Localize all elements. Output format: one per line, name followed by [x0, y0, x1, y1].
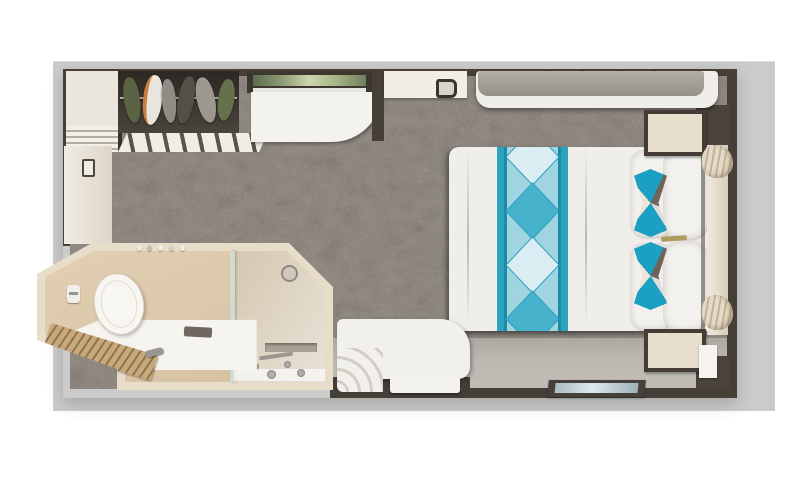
nightstand-bottom	[644, 329, 706, 372]
bed-runner	[497, 147, 568, 331]
sofa-cushion	[478, 71, 704, 96]
chair-arm-arcs	[337, 348, 383, 392]
toiletry-bottle	[147, 245, 152, 251]
garment	[215, 78, 237, 122]
curtain-top	[702, 145, 733, 178]
wall-panel-bottom-right	[699, 345, 717, 378]
curtain-pleats	[702, 295, 733, 330]
shower-door	[234, 369, 325, 381]
ottoman	[390, 375, 460, 393]
wall-cabinet	[384, 71, 467, 98]
shower-fixture	[267, 370, 276, 379]
toiletry-bottle	[137, 245, 142, 251]
garment	[160, 78, 178, 123]
kettle-icon	[436, 79, 457, 98]
duvet-crease	[585, 149, 587, 327]
shower-fixture	[284, 361, 291, 368]
toilet-paper-holder	[67, 285, 80, 303]
duvet-crease	[467, 149, 469, 327]
curtain-pleats	[702, 145, 733, 178]
entry-mat	[547, 380, 646, 397]
nightstand-top	[644, 110, 706, 156]
floorplan-stage	[0, 0, 800, 500]
bathroom-door	[64, 146, 112, 244]
garment	[121, 76, 143, 124]
wardrobe-divider	[372, 71, 384, 141]
door-handle-icon	[82, 159, 95, 177]
shelf-tower	[66, 71, 122, 152]
entry-mat-inset	[555, 383, 639, 393]
toiletry-bottle	[169, 245, 174, 251]
mirror-art	[247, 71, 372, 93]
shower-niche	[265, 343, 317, 352]
amenity-tray	[184, 326, 212, 337]
closet	[118, 71, 239, 133]
sofa	[476, 71, 718, 108]
curtain-bottom	[702, 295, 733, 330]
mirror-reflection	[253, 75, 366, 86]
slat-doors	[118, 133, 268, 152]
shower-fixture	[297, 369, 305, 377]
toiletry-bottle	[158, 245, 163, 251]
toiletry-bottle	[180, 245, 185, 251]
garment	[192, 76, 219, 125]
garment	[174, 75, 198, 125]
shower-drain-icon	[281, 265, 298, 282]
